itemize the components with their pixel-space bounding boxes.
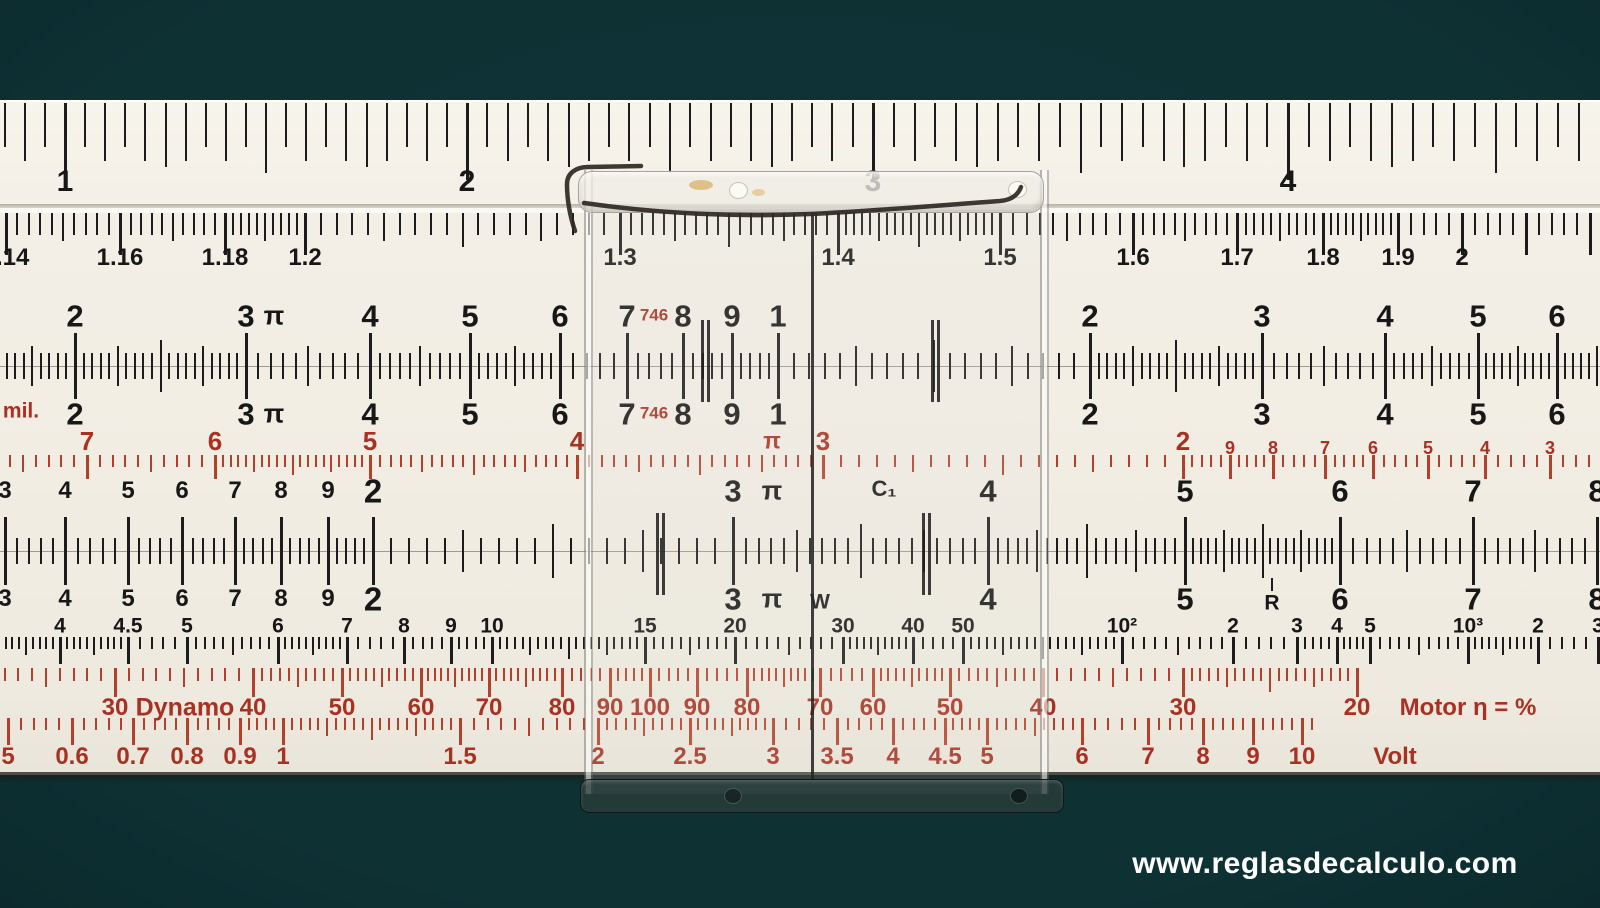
tick-mark (1445, 538, 1447, 564)
tick-mark (462, 455, 464, 467)
slide_red-scale-label: 4 (1480, 439, 1490, 457)
tick-mark (1105, 538, 1107, 564)
tick-mark (1279, 213, 1281, 241)
tick-mark (483, 455, 485, 467)
tick-mark (1038, 103, 1040, 161)
slide-rule-photo: www.reglasdecalculo.com 12341.141.161.18… (0, 0, 1600, 908)
tick-mark (748, 455, 750, 467)
c-scale-label: 6 (175, 479, 188, 503)
ll-scale-label: 30 (831, 616, 854, 637)
tick-mark (1002, 637, 1004, 655)
tick-mark (223, 538, 225, 564)
tick-mark (1472, 517, 1475, 585)
tick-mark (785, 718, 787, 730)
tick-mark (291, 637, 293, 649)
tick-mark (962, 538, 964, 564)
tick-mark (974, 538, 976, 564)
tick-mark (339, 637, 341, 649)
tick-mark (390, 455, 392, 467)
tick-mark (1585, 637, 1587, 649)
tick-mark (1042, 637, 1044, 659)
d-scale-label: R (1264, 593, 1279, 614)
tick-mark (1481, 637, 1483, 649)
tick-mark (354, 455, 356, 467)
tick-mark (444, 538, 446, 564)
tick-mark (389, 353, 391, 379)
tick-mark (1589, 213, 1592, 255)
tick-mark (842, 637, 845, 664)
tick-mark (363, 538, 365, 564)
tick-mark (1383, 455, 1385, 467)
tick-mark (1559, 538, 1561, 564)
tick-mark (201, 455, 203, 467)
tick-mark (1536, 455, 1538, 467)
ll-scale-label: 9 (445, 616, 457, 637)
tick-mark (429, 353, 431, 379)
tick-mark (1252, 668, 1254, 681)
tick-mark (259, 637, 261, 649)
tick-mark (847, 538, 849, 564)
tick-mark (91, 353, 93, 379)
tick-mark (367, 213, 369, 235)
tick-mark (930, 455, 932, 467)
tick-mark (696, 668, 699, 697)
tick-mark (273, 718, 275, 730)
tick-mark (224, 668, 226, 681)
tick-mark (783, 668, 785, 687)
tick-mark (887, 668, 889, 681)
tick-mark (1146, 455, 1148, 467)
tick-mark (1049, 637, 1051, 649)
tick-mark (514, 346, 516, 386)
tick-mark (330, 455, 332, 472)
d-scale-label: 6 (1331, 584, 1348, 615)
dynamo-scale-label: 100 (630, 696, 670, 720)
tick-mark (684, 213, 686, 235)
tick-mark (863, 637, 865, 649)
dynamo-scale-label: 40 (240, 696, 267, 720)
tick-mark (419, 346, 421, 386)
tick-mark (1202, 718, 1205, 745)
tick-mark (1065, 637, 1067, 649)
tick-mark (731, 718, 733, 736)
tick-mark (678, 538, 680, 564)
tick-mark (142, 353, 144, 379)
tick-mark (237, 455, 239, 467)
tick-mark (1510, 455, 1512, 467)
tick-mark (1418, 637, 1420, 655)
tick-mark (392, 637, 394, 649)
tick-mark (711, 353, 713, 379)
tick-mark (1184, 213, 1186, 241)
tick-mark (1121, 718, 1123, 730)
tick-mark (165, 103, 167, 167)
d-scale-label: 2 (364, 583, 382, 616)
tick-mark (305, 103, 307, 161)
tick-mark (176, 455, 178, 467)
upper-scale-label: 1.14 (0, 246, 29, 270)
tick-mark (320, 213, 322, 235)
tick-mark (893, 103, 895, 147)
tick-mark (507, 103, 509, 161)
tick-mark (572, 353, 574, 379)
tick-mark (434, 668, 436, 681)
tick-mark (1242, 718, 1244, 730)
tick-mark (840, 455, 842, 467)
tick-mark (243, 538, 245, 564)
tick-mark (878, 213, 880, 241)
tick-mark (86, 668, 88, 681)
tick-mark (1435, 213, 1437, 235)
tick-mark (481, 668, 483, 681)
tick-mark (793, 353, 795, 379)
tick-mark (388, 718, 390, 730)
tick-mark (1288, 213, 1290, 235)
tick-mark (4, 668, 6, 681)
tick-mark (1217, 668, 1219, 681)
tick-mark (1305, 213, 1307, 235)
tick-mark (142, 668, 144, 681)
d-scale-label: W (810, 592, 830, 613)
tick-mark (16, 213, 18, 235)
ll-scale-label: 20 (723, 616, 746, 637)
tick-mark (758, 538, 760, 564)
tick-mark (1210, 637, 1212, 649)
tick-mark (125, 353, 127, 379)
tick-mark (239, 718, 242, 745)
tick-mark (997, 538, 999, 564)
slide_red-scale-label: 3 (1545, 439, 1555, 457)
volt-scale-label: 0.7 (116, 745, 149, 769)
tick-mark (1066, 213, 1068, 241)
tick-mark (1158, 353, 1160, 379)
tick-mark (580, 668, 582, 681)
tick-mark (412, 637, 414, 649)
tick-mark (870, 637, 872, 649)
tick-mark (295, 353, 297, 379)
tick-mark (404, 668, 406, 681)
slide[interactable] (0, 367, 1600, 551)
tick-mark (1339, 668, 1341, 681)
tick-mark (922, 637, 924, 649)
tick-mark (253, 455, 255, 472)
tick-mark (652, 213, 654, 235)
tick-mark (626, 333, 629, 399)
tick-mark (1220, 455, 1222, 467)
tick-mark (926, 213, 928, 235)
tick-mark (73, 455, 75, 467)
tick-mark (1143, 637, 1145, 649)
tick-mark (1070, 668, 1072, 681)
cursor-aux-mark (931, 320, 934, 402)
tick-mark (214, 455, 217, 479)
tick-mark (764, 718, 766, 730)
tick-mark (308, 538, 310, 564)
tick-mark (1262, 524, 1264, 578)
tick-mark (1262, 213, 1264, 235)
tick-mark (994, 637, 996, 649)
tick-mark (1015, 718, 1017, 730)
tick-mark (959, 213, 961, 241)
b-scale-label: 2 (1081, 399, 1098, 430)
volt-scale-label: 8 (1196, 745, 1209, 769)
volt-scale-label: 4.5 (928, 745, 961, 769)
tick-mark (1534, 530, 1536, 572)
tick-mark (1010, 637, 1012, 649)
tick-mark (1134, 718, 1136, 730)
a-scale-label: 5 (1469, 301, 1486, 332)
tick-mark (307, 455, 309, 467)
rule-top-edge (0, 100, 1600, 102)
tick-mark (452, 455, 454, 467)
tick-mark (1253, 213, 1255, 235)
tick-mark (717, 213, 719, 235)
tick-mark (1011, 346, 1013, 386)
tick-mark (871, 353, 873, 379)
tick-mark (759, 353, 761, 379)
upper-scale-label: 1.5 (983, 246, 1016, 270)
dynamo-scale-label: 50 (937, 696, 964, 720)
tick-mark (193, 213, 195, 235)
tick-mark (1356, 637, 1358, 649)
a-scale-label: 6 (551, 301, 568, 332)
tick-mark (1359, 353, 1361, 379)
tick-mark (1573, 637, 1575, 649)
tick-mark (1192, 538, 1194, 564)
tick-mark (1308, 103, 1310, 147)
c-scale-label: 2 (364, 475, 382, 508)
tick-mark (699, 455, 701, 475)
tick-mark (1199, 668, 1201, 681)
tick-mark (1458, 353, 1460, 379)
tick-mark (373, 668, 375, 681)
c-scale-label: 5 (1176, 476, 1193, 507)
tick-mark (1477, 333, 1480, 399)
tick-mark (488, 668, 491, 697)
tick-mark (775, 668, 777, 681)
tick-mark (876, 455, 878, 467)
tick-mark (1273, 353, 1275, 379)
tick-mark (1036, 530, 1038, 572)
tick-mark (1561, 637, 1563, 649)
tick-mark (820, 637, 822, 649)
tick-mark (16, 538, 18, 564)
tick-mark (772, 213, 774, 235)
tick-mark (542, 718, 544, 730)
tick-mark (205, 103, 207, 147)
tick-mark (1215, 213, 1217, 235)
tick-mark (1201, 455, 1203, 467)
tick-mark (948, 455, 950, 467)
tick-mark (1349, 103, 1351, 147)
tick-mark (1538, 213, 1540, 235)
tick-mark (740, 353, 742, 379)
tick-mark (134, 353, 136, 379)
tick-mark (491, 637, 494, 664)
tick-mark (1474, 213, 1476, 235)
tick-mark (1210, 455, 1212, 467)
tick-mark (102, 538, 104, 564)
tick-mark (1121, 103, 1123, 161)
tick-mark (73, 637, 75, 649)
tick-mark (1113, 637, 1115, 649)
tick-mark (791, 103, 793, 161)
tick-mark (1222, 718, 1224, 730)
volt-scale-label: 5 (1, 745, 14, 769)
tick-mark (912, 637, 915, 664)
tick-mark (714, 718, 716, 730)
tick-mark (230, 455, 232, 467)
tick-mark (913, 718, 915, 730)
tick-mark (474, 668, 476, 681)
tick-mark (689, 637, 691, 655)
tick-mark (1042, 668, 1045, 697)
tick-mark (608, 103, 610, 147)
tick-mark (1272, 718, 1274, 730)
tick-mark (777, 637, 779, 649)
tick-mark (83, 718, 85, 730)
c-scale-label: C₁ (872, 478, 897, 500)
tick-mark (1293, 455, 1295, 467)
tick-mark (192, 538, 194, 564)
tick-mark (1343, 637, 1345, 649)
tick-mark (498, 538, 500, 564)
tick-mark (689, 718, 692, 745)
tick-mark (1509, 353, 1511, 379)
tick-mark (493, 455, 495, 467)
tick-mark (268, 637, 270, 649)
tick-mark (300, 718, 302, 730)
tick-mark (898, 538, 900, 564)
tick-mark (1497, 538, 1499, 564)
tick-mark (1356, 668, 1359, 697)
tick-mark (45, 668, 47, 687)
tick-mark (714, 538, 716, 564)
tick-mark (571, 668, 573, 681)
tick-mark (1026, 637, 1028, 649)
dynamo-scale-label: 20 (1344, 696, 1371, 720)
tick-mark (1410, 213, 1412, 235)
tick-mark (599, 668, 601, 681)
tick-mark (1199, 637, 1201, 649)
tick-mark (1095, 538, 1097, 564)
tick-mark (996, 718, 998, 730)
tick-mark (1238, 455, 1240, 467)
tick-mark (716, 668, 718, 681)
tick-mark (285, 103, 287, 147)
tick-mark (140, 213, 142, 235)
a-scale-label: 7 (618, 301, 635, 332)
slide_red-scale-label: 8 (1268, 439, 1278, 457)
tick-mark (1405, 455, 1407, 467)
tick-mark (583, 718, 585, 730)
tick-mark (59, 668, 61, 681)
tick-mark (1563, 213, 1565, 235)
dynamo-scale-label: 90 (684, 696, 711, 720)
tick-mark (1524, 353, 1526, 379)
tick-mark (40, 538, 42, 564)
volt-scale-label: 0.8 (170, 745, 203, 769)
tick-mark (6, 353, 8, 379)
tick-mark (894, 213, 896, 235)
tick-mark (420, 668, 423, 697)
tick-mark (1260, 668, 1262, 681)
tick-mark (83, 353, 85, 379)
tick-mark (1168, 668, 1170, 681)
tick-mark (1072, 718, 1074, 730)
tick-mark (606, 538, 608, 564)
tick-mark (1147, 718, 1150, 745)
tick-mark (169, 668, 171, 681)
tick-mark (493, 213, 495, 235)
tick-mark (680, 718, 682, 730)
tick-mark (852, 103, 854, 147)
tick-mark (1515, 103, 1517, 147)
tick-mark (834, 538, 836, 564)
tick-mark (725, 637, 727, 649)
tick-mark (1453, 103, 1455, 161)
tick-mark (1107, 718, 1109, 730)
tick-mark (586, 353, 588, 379)
tick-mark (628, 103, 630, 161)
a-scale-label: 4 (1376, 301, 1393, 332)
tick-mark (336, 538, 338, 564)
tick-mark (1421, 353, 1423, 379)
tick-mark (851, 668, 853, 681)
tick-mark (315, 455, 317, 467)
tick-mark (357, 637, 359, 649)
tick-mark (1339, 517, 1342, 585)
cursor-aux-mark (922, 513, 925, 595)
tick-mark (298, 637, 300, 649)
tick-mark (1345, 213, 1347, 235)
tick-mark (1352, 213, 1354, 235)
tick-mark (559, 333, 562, 399)
tick-mark (1379, 637, 1381, 649)
tick-mark (804, 668, 806, 681)
tick-mark (671, 353, 673, 379)
d-scale-label: 7 (228, 587, 241, 611)
tick-mark (706, 213, 708, 235)
tick-mark (52, 637, 54, 649)
tick-mark (349, 668, 351, 681)
tick-mark (282, 353, 284, 379)
tick-mark (1208, 668, 1210, 681)
d-scale-label: 5 (1176, 584, 1193, 615)
tick-mark (127, 637, 130, 664)
tick-mark (307, 346, 309, 386)
tick-mark (1447, 637, 1449, 649)
tick-mark (545, 637, 547, 649)
tick-mark (1079, 213, 1081, 235)
slide_red-scale-label: 6 (208, 428, 222, 454)
tick-mark (1362, 637, 1364, 649)
tick-mark (1546, 538, 1548, 564)
tick-mark (898, 637, 900, 649)
tick-mark (1588, 455, 1590, 467)
tick-mark (1310, 353, 1312, 379)
tick-mark (824, 353, 826, 379)
tick-mark (357, 353, 359, 379)
tick-mark (25, 637, 27, 655)
tick-mark (1330, 668, 1332, 681)
tick-mark (1141, 353, 1143, 379)
tick-mark (170, 538, 172, 564)
tick-mark (400, 455, 402, 467)
tick-mark (936, 538, 938, 564)
cursor-bottom-rail[interactable] (580, 779, 1064, 813)
tick-mark (1263, 455, 1265, 467)
